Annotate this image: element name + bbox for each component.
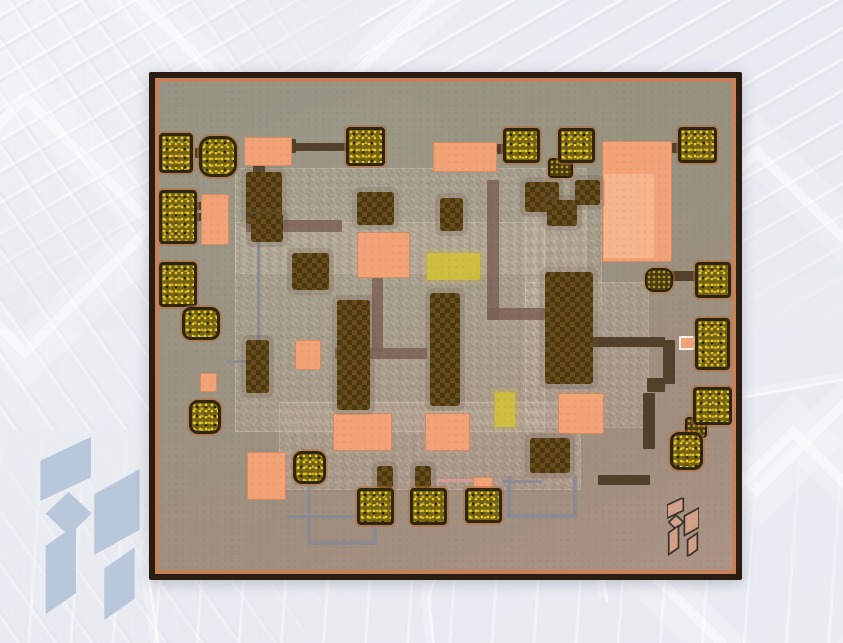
metal-pad-inner	[604, 174, 654, 258]
gold-bond-pad	[159, 262, 197, 307]
metal-pad	[295, 340, 321, 370]
page-background	[0, 0, 843, 643]
brand-watermark-logo	[40, 437, 140, 620]
gold-bond-pad	[346, 127, 385, 166]
transistor-block	[545, 272, 593, 384]
transistor-block	[430, 293, 460, 406]
gray-trace	[307, 482, 311, 545]
metal-pad	[247, 452, 286, 500]
gold-bond-pad	[182, 307, 220, 340]
gray-trace	[502, 480, 542, 483]
gray-trace	[307, 541, 377, 545]
transistor-block	[530, 438, 570, 473]
gold-bond-pad	[695, 262, 731, 298]
dark-trace	[598, 475, 650, 485]
transistor-block	[415, 466, 431, 488]
transistor-block	[377, 466, 393, 488]
purple-trace	[487, 308, 545, 320]
die-surface	[159, 82, 732, 570]
transistor-block	[440, 198, 463, 231]
purple-trace	[487, 180, 499, 320]
die-brand-logo	[667, 497, 699, 557]
gray-trace	[573, 476, 577, 518]
transistor-block	[547, 200, 577, 226]
dark-trace	[643, 393, 655, 449]
gold-bond-pad	[558, 128, 595, 163]
metal-pad	[201, 194, 229, 245]
gold-bond-pad	[410, 488, 447, 525]
transistor-block	[575, 180, 600, 205]
gold-bond-pad	[465, 488, 502, 523]
gold-bond-pad	[678, 127, 717, 163]
gray-trace	[286, 515, 366, 518]
metal-pad	[425, 413, 470, 451]
purple-trace	[372, 278, 383, 352]
metal-pad	[200, 373, 217, 392]
gold-bond-pad	[357, 488, 394, 525]
gold-bond-pad	[199, 136, 237, 177]
dark-trace	[663, 340, 675, 384]
metal-pad	[357, 232, 410, 278]
gold-bond-pad	[503, 128, 540, 163]
dark-trace	[647, 378, 665, 392]
gray-trace	[507, 514, 577, 518]
transistor-block	[246, 340, 269, 393]
metal-pad	[244, 137, 292, 166]
gold-bond-pad	[189, 400, 221, 434]
metal-pad	[333, 413, 392, 451]
transistor-block	[357, 192, 394, 225]
dark-gold-pad	[645, 268, 673, 292]
transistor-block	[251, 214, 283, 242]
metal-pad	[473, 477, 493, 488]
transistor-block	[292, 253, 329, 290]
gold-bond-pad	[293, 451, 326, 484]
dark-trace	[292, 143, 348, 151]
dark-trace	[589, 337, 665, 347]
die-photo	[149, 72, 742, 580]
gold-bond-pad	[159, 133, 193, 173]
connector-pad	[679, 336, 695, 350]
transistor-block	[337, 300, 370, 410]
gold-bond-pad	[693, 387, 732, 425]
metal-pad	[433, 142, 497, 172]
metal-pad	[558, 393, 604, 434]
resistor-mark	[427, 253, 480, 280]
gold-bond-pad	[159, 190, 197, 244]
resistor-mark	[495, 392, 515, 427]
gold-bond-pad	[695, 318, 730, 370]
gold-bond-pad	[670, 432, 703, 470]
